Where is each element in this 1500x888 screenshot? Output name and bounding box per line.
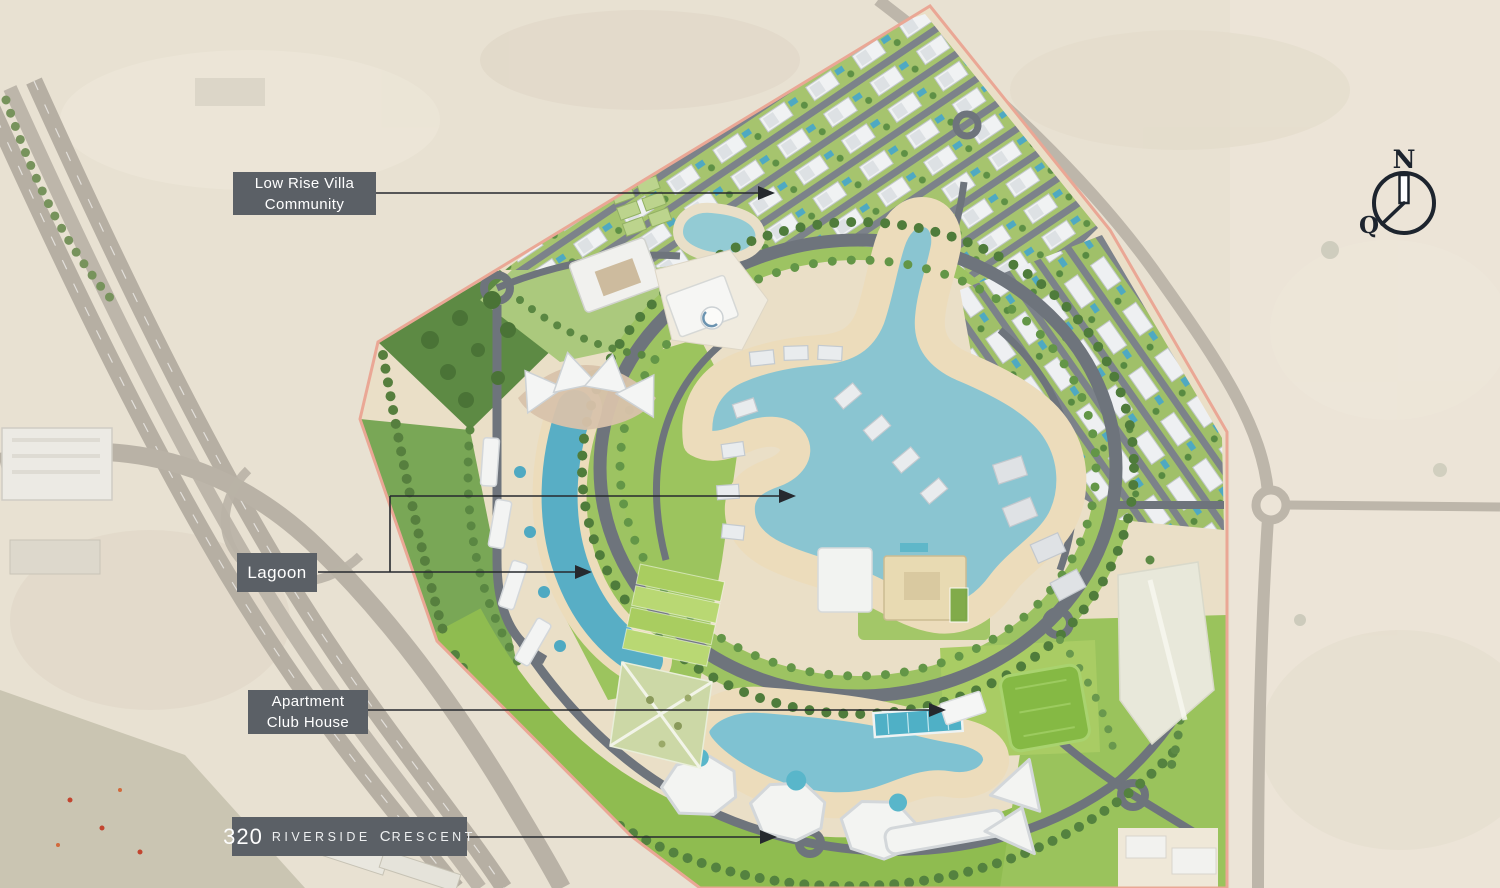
- riverside-number: 320: [223, 824, 263, 850]
- crescent-initial: C: [380, 828, 392, 845]
- compass-north-letter: N: [1393, 145, 1416, 174]
- compass-needle: [1400, 175, 1409, 203]
- southeast-plaza: [1118, 828, 1218, 888]
- annotation-apartment-club-house: Apartment Club House: [248, 690, 368, 734]
- annotation-low-rise-villa-community: Low Rise Villa Community: [233, 172, 376, 215]
- compass-qibla-letter: Q: [1359, 212, 1379, 239]
- riverside-word: RIVERSIDE: [272, 830, 371, 844]
- crescent-rest: RESCENT: [392, 830, 476, 844]
- modern-mansion: [818, 548, 872, 612]
- crescent-word: CRESCENT: [380, 828, 476, 845]
- annotation-320-riverside-crescent: 320 RIVERSIDE CRESCENT: [232, 817, 467, 856]
- annotation-lagoon: Lagoon: [237, 553, 317, 592]
- masterplan-page: N Q Low Rise Villa Community Lagoon Apar…: [0, 0, 1500, 888]
- masterplan-map: N Q: [0, 0, 1500, 888]
- sports-field: [999, 664, 1091, 753]
